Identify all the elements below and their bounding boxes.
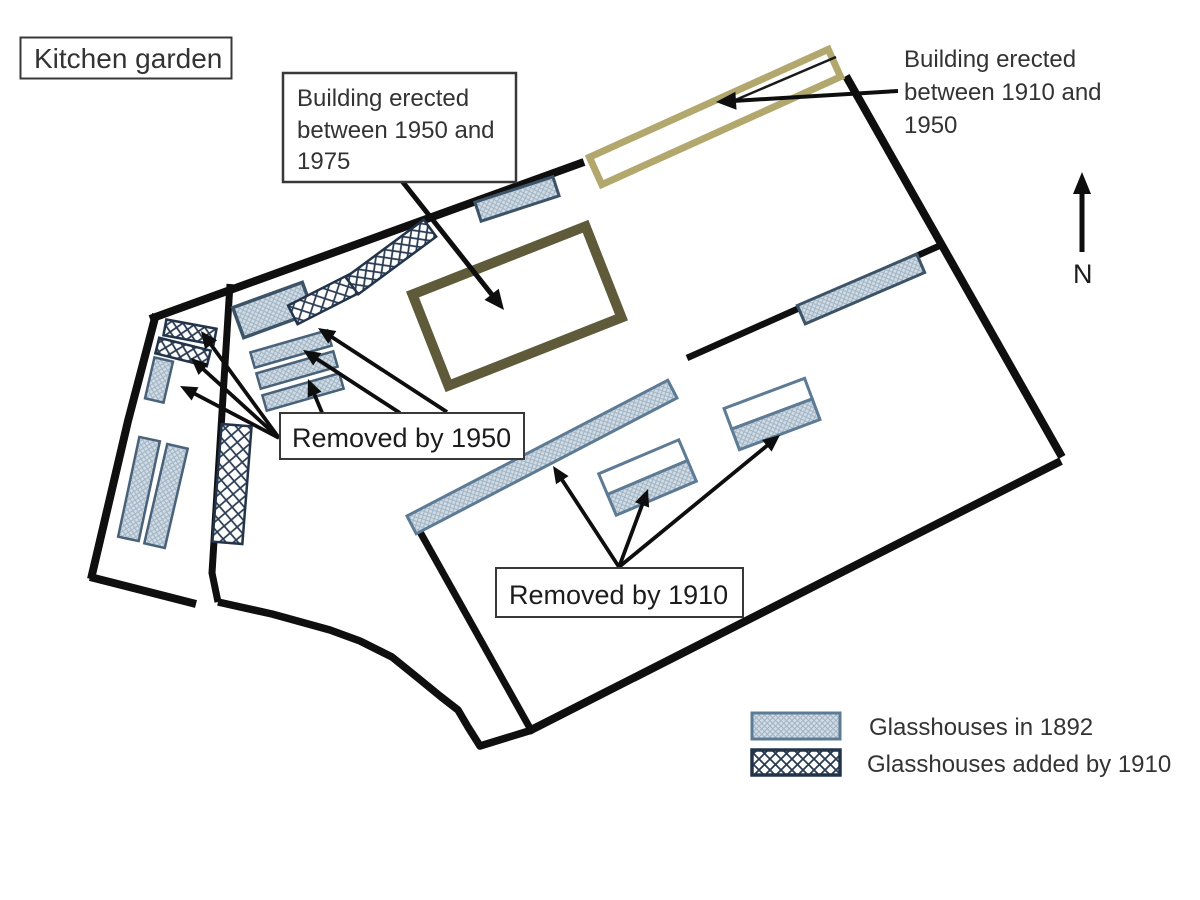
svg-text:between 1910 and: between 1910 and (904, 79, 1102, 106)
svg-text:Glasshouses added by 1910: Glasshouses added by 1910 (867, 751, 1171, 778)
svg-text:Building erected: Building erected (904, 46, 1076, 73)
svg-text:N: N (1073, 259, 1093, 289)
svg-text:Removed by 1950: Removed by 1950 (292, 423, 511, 453)
svg-text:1950: 1950 (904, 112, 957, 139)
svg-text:between 1950 and: between 1950 and (297, 117, 495, 144)
svg-text:Glasshouses in 1892: Glasshouses in 1892 (869, 714, 1093, 741)
svg-text:Kitchen garden: Kitchen garden (34, 43, 222, 74)
svg-text:Removed by 1910: Removed by 1910 (509, 580, 728, 610)
svg-text:1975: 1975 (297, 148, 350, 175)
svg-text:Building erected: Building erected (297, 85, 469, 112)
